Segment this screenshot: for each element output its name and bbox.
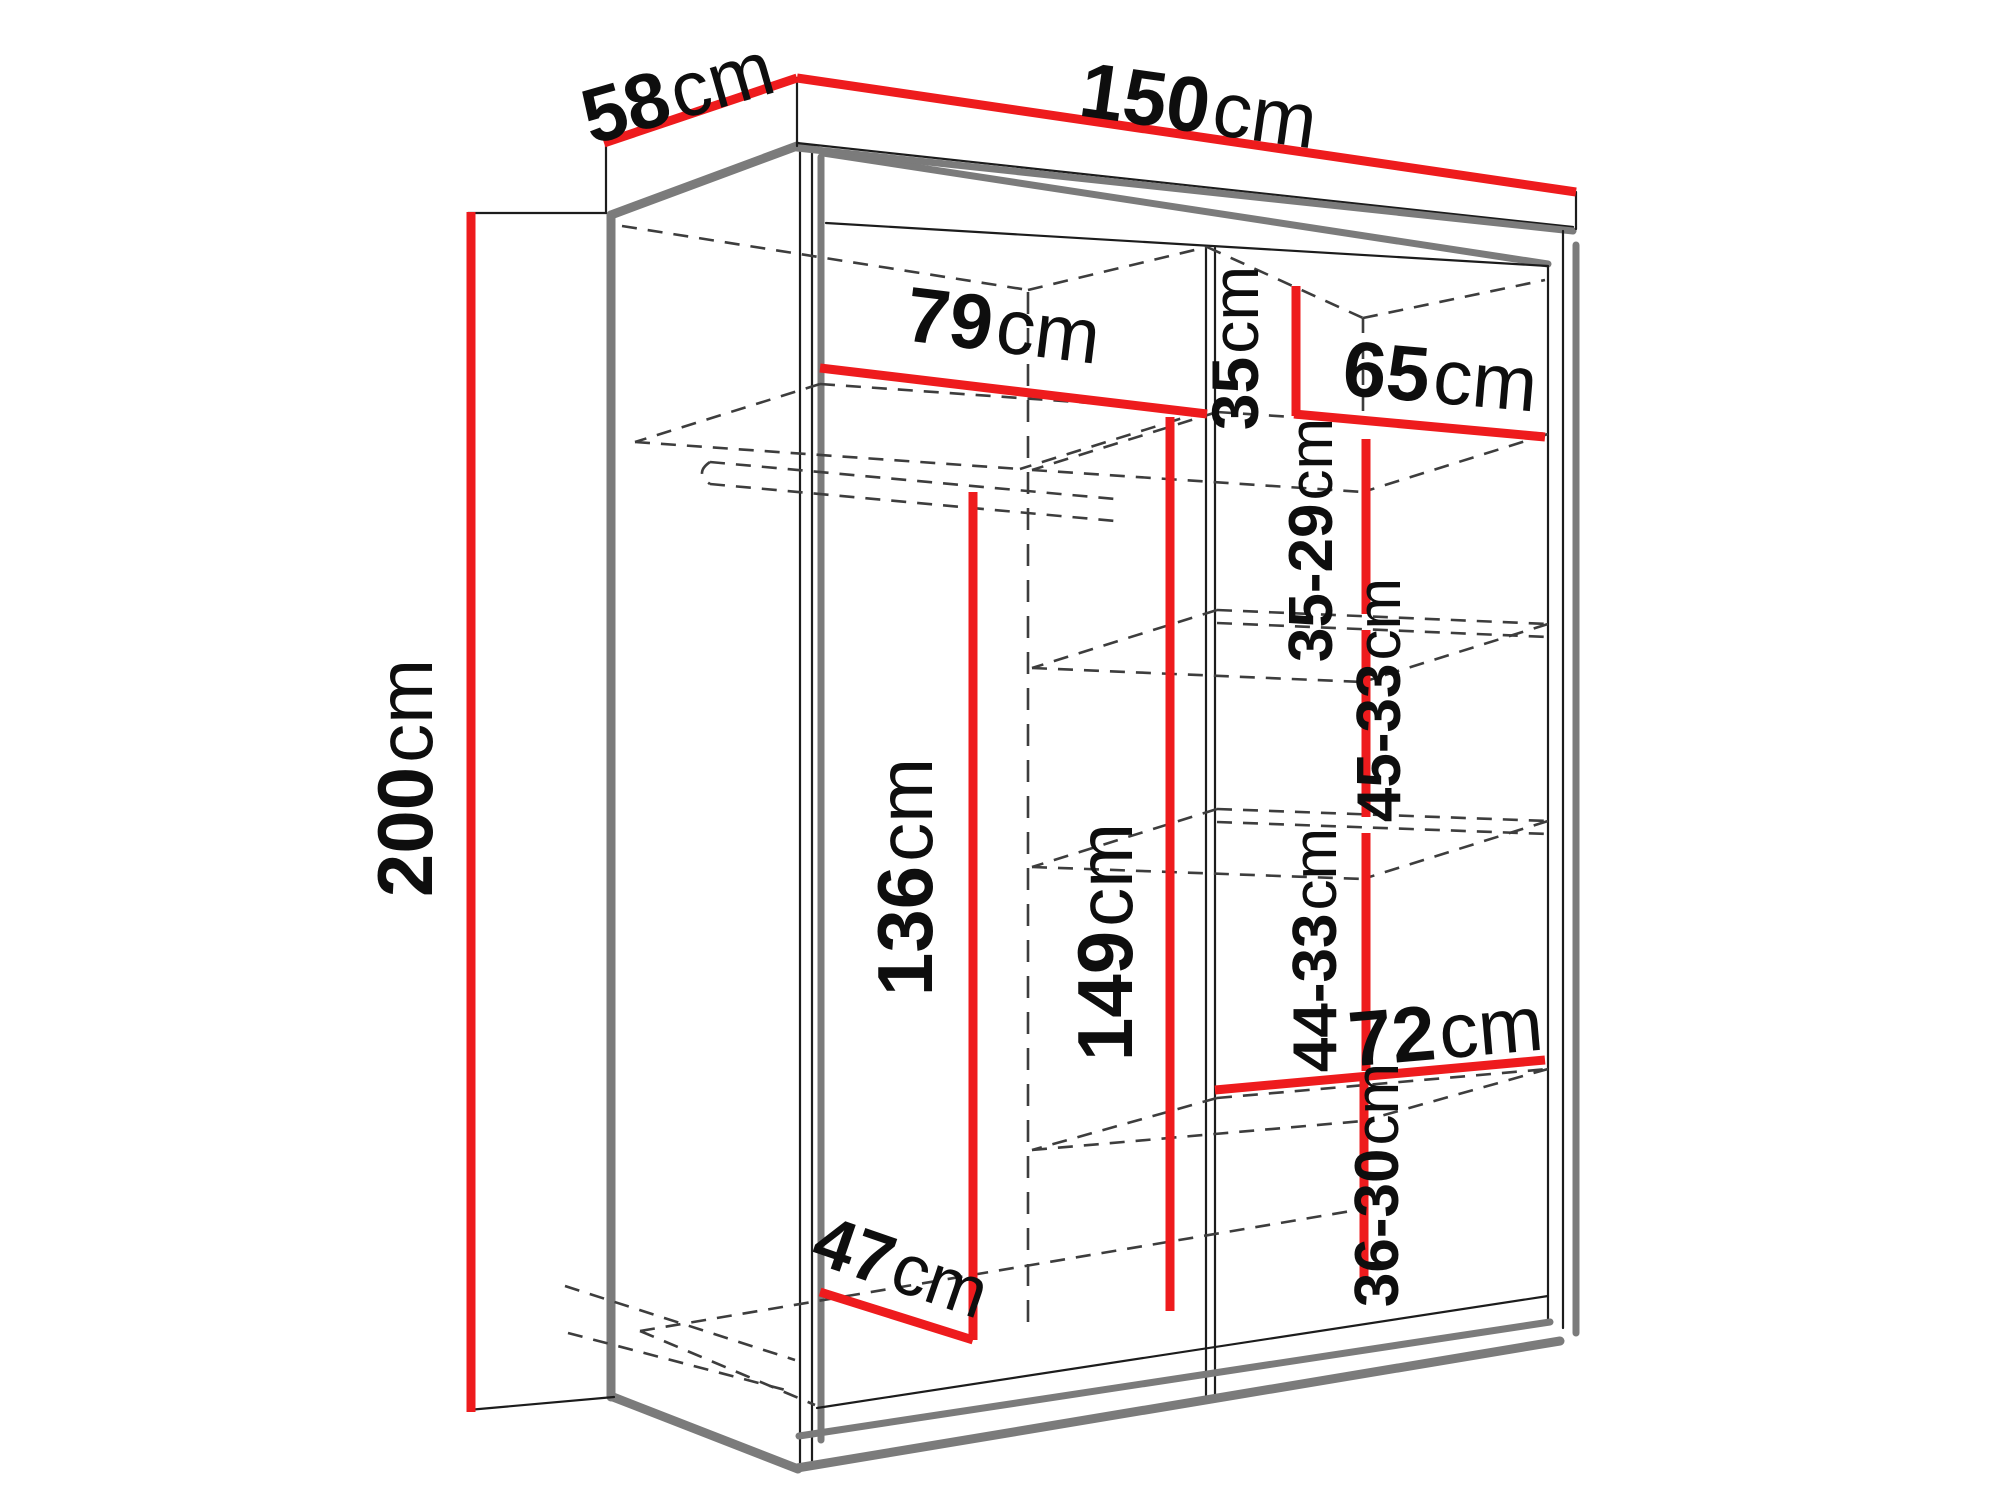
label-79: 79cm — [901, 270, 1105, 381]
shelf1-left-edge — [1032, 412, 1217, 470]
left-shelf-back-edge — [635, 442, 1020, 469]
shelf1-right-edge — [1363, 434, 1548, 492]
shelf2-left-edge — [1032, 610, 1217, 668]
top-front-edge — [797, 148, 1573, 231]
label-44-33: 44-33cm — [1281, 828, 1350, 1072]
shelf3-front-bottom-edge — [1217, 822, 1548, 834]
wardrobe-dimension-diagram: 58cm 150cm 200cm 79cm 35cm 65cm 35-29cm … — [0, 0, 2000, 1500]
divider-top-depth-edge — [1028, 247, 1207, 290]
hanging-rail-end-cap — [702, 462, 710, 484]
hanging-rail-top — [710, 462, 1115, 499]
right-wall-top-edge — [1363, 280, 1545, 318]
top-front-edge-outline — [797, 143, 1573, 227]
base-front-edge — [799, 1322, 1550, 1436]
label-height-200: 200cm — [361, 659, 449, 897]
left-panel-bottom-edge — [613, 1397, 798, 1469]
label-36-30: 36-30cm — [1343, 1063, 1412, 1307]
base-hidden-edge-lower — [568, 1333, 793, 1392]
label-35: 35cm — [1198, 266, 1272, 430]
leader-height-bottom — [468, 1397, 614, 1410]
left-shelf-left-edge — [635, 384, 820, 442]
label-width-150: 150cm — [1075, 45, 1323, 165]
label-35-29: 35-29cm — [1277, 418, 1346, 662]
shelf2-back-edge — [1032, 668, 1363, 682]
label-136: 136cm — [861, 758, 949, 996]
plinth-bottom-edge — [797, 1341, 1560, 1468]
label-149: 149cm — [1061, 823, 1149, 1061]
label-65: 65cm — [1340, 324, 1542, 429]
diagram-canvas: 58cm 150cm 200cm 79cm 35cm 65cm 35-29cm … — [0, 0, 2000, 1500]
left-shelf-right-edge — [1020, 411, 1205, 469]
label-45-33: 45-33cm — [1345, 578, 1414, 822]
floor-back-edge — [640, 1209, 1363, 1331]
left-panel-top-edge — [611, 146, 797, 215]
floor-left-edge — [640, 1331, 815, 1405]
dimension-labels: 58cm 150cm 200cm 79cm 35cm 65cm 35-29cm … — [361, 23, 1546, 1334]
dim-line-79 — [820, 368, 1207, 414]
hanging-rail-bottom — [710, 484, 1115, 521]
label-depth-58: 58cm — [572, 23, 783, 161]
